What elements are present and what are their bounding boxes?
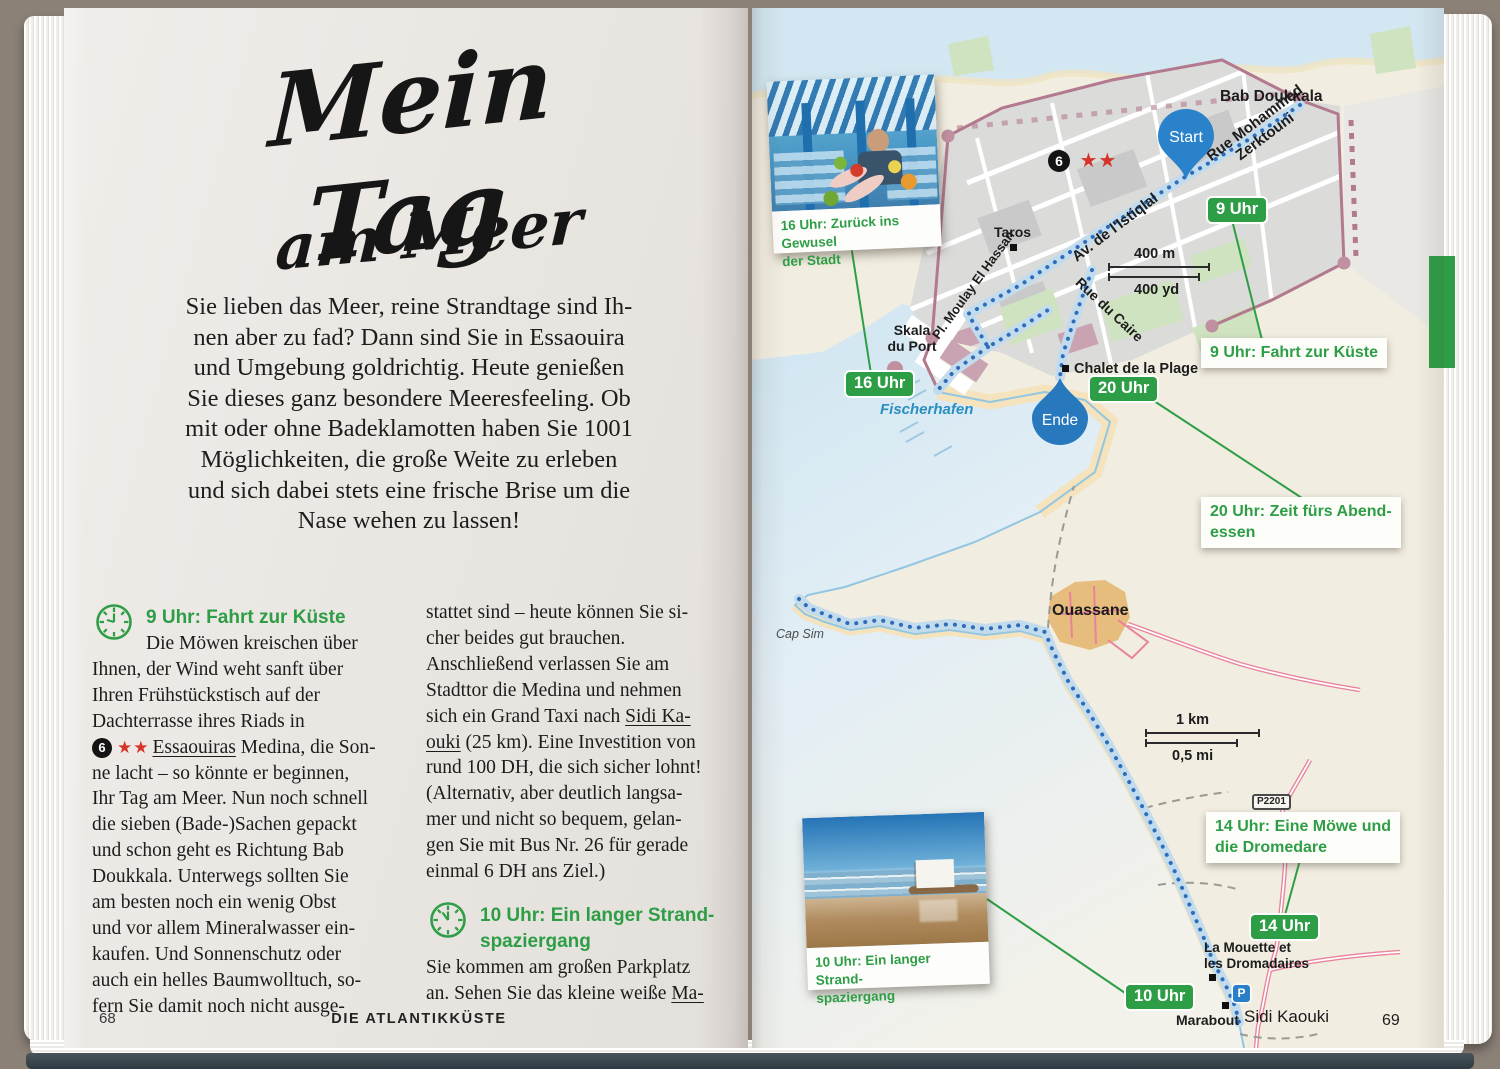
photo-caption-10uhr: 10 Uhr: Ein langer Strand- spaziergang xyxy=(807,942,991,1015)
map-label-chalet: Chalet de la Plage xyxy=(1074,361,1198,377)
scalebar-400m-label: 400 m xyxy=(1134,246,1175,262)
map-label-fischerhafen: Fischerhafen xyxy=(880,401,973,418)
body-line-link: ouki (25 km). Eine Investition von xyxy=(426,730,758,756)
map-label-cap-sim: Cap Sim xyxy=(776,627,824,641)
poi-link-marabout: Ma- xyxy=(671,983,704,1004)
map-label-line: les Dromadaires xyxy=(1204,956,1309,972)
intro-line: Sie dieses ganz besondere Meeresfeeling.… xyxy=(142,384,676,415)
left-page: Mein Tag am Meer Sie lieben das Meer, re… xyxy=(64,8,748,1048)
scalebar-1km-label: 1 km xyxy=(1176,712,1209,728)
body-line: mer und nicht so bequem, gelan- xyxy=(426,807,758,833)
intro-line: und sich dabei stets eine frische Brise … xyxy=(142,476,676,507)
clock-icon xyxy=(428,900,468,940)
clock-icon xyxy=(94,602,134,642)
ende-pin-label: Ende xyxy=(1042,412,1078,429)
start-pin: Start xyxy=(1156,108,1216,182)
body-line: ne lacht – so könnte er beginnen, xyxy=(92,761,424,787)
start-pin-label: Start xyxy=(1169,129,1203,146)
body-line: Anschließend verlassen Sie am xyxy=(426,652,758,678)
time-badge-10uhr: 10 Uhr xyxy=(1126,985,1193,1009)
intro-line: nen aber zu fad? Dann sind Sie in Essaou… xyxy=(142,323,676,354)
photo-market-16uhr: 16 Uhr: Zurück ins Gewusel der Stadt xyxy=(766,74,941,253)
poi-number-badge: 6 xyxy=(1048,150,1070,172)
body-column-1: 9 Uhr: Fahrt zur Küste Die Möwen kreisch… xyxy=(92,600,424,1020)
chapter-thumb-tab xyxy=(1429,256,1455,368)
body-line: Stadttor die Medina und nehmen xyxy=(426,678,758,704)
ende-pin: Ende xyxy=(1030,376,1090,446)
body-line: (Alternativ, aber deutlich langsa- xyxy=(426,781,758,807)
section-heading-10uhr-line2: spaziergang xyxy=(480,929,758,955)
section-10uhr-heading-row: 10 Uhr: Ein langer Strand- spaziergang xyxy=(426,898,758,955)
book-cover-edge xyxy=(26,1053,1474,1069)
body-line: stattet sind – heute können Sie si- xyxy=(426,600,758,626)
caption-line: 10 Uhr: Ein langer Strand- xyxy=(815,948,982,990)
time-badge-20uhr: 20 Uhr xyxy=(1090,377,1157,401)
page-number-left: 68 xyxy=(99,1010,116,1027)
map-label-ouassane: Ouassane xyxy=(1052,602,1128,620)
rating-stars: ★★ xyxy=(117,738,149,757)
section-heading-10uhr-line1: 10 Uhr: Ein langer Strand- xyxy=(480,898,758,929)
body-line: und schon geht es Richtung Bab xyxy=(92,838,424,864)
body-line: die sieben (Bade-)Sachen gepackt xyxy=(92,812,424,838)
time-badge-9uhr: 9 Uhr xyxy=(1208,198,1266,222)
body-line-poi: 6★★Essaouiras Medina, die Son- xyxy=(92,735,424,761)
photo-caption-16uhr: 16 Uhr: Zurück ins Gewusel der Stadt xyxy=(772,204,943,278)
poi-square-chalet xyxy=(1062,365,1069,372)
body-line: Ihnen, der Wind weht sanft über xyxy=(92,657,424,683)
photo-image-beach xyxy=(802,812,988,948)
body-line: rund 100 DH, die sich sicher lohnt! xyxy=(426,755,758,781)
beach-scene xyxy=(802,812,988,948)
right-page-map: Bab Doukkala Rue Mohammed Zerktouni Av. … xyxy=(752,8,1444,1048)
callout-line: essen xyxy=(1210,522,1392,543)
body-text: (25 km). Eine Investition von xyxy=(461,732,696,753)
book-right-page-stack xyxy=(1444,14,1492,1044)
body-line: am besten noch ein wenig Obst xyxy=(92,890,424,916)
poi-square-la-mouette xyxy=(1209,974,1216,981)
map-label-marabout: Marabout xyxy=(1176,1012,1239,1028)
poi-link-essaouira: Essaouiras xyxy=(152,737,235,758)
body-line: kaufen. Und Sonnenschutz oder xyxy=(92,942,424,968)
callout-line: 20 Uhr: Zeit fürs Abend- xyxy=(1210,501,1392,522)
poi-number-badge: 6 xyxy=(92,738,112,758)
scalebar-400yd-label: 400 yd xyxy=(1134,282,1179,298)
body-line: Doukkala. Unterwegs sollten Sie xyxy=(92,864,424,890)
body-line: Dachterrasse ihres Riads in xyxy=(92,709,424,735)
body-line: und vor allem Mineralwasser ein- xyxy=(92,916,424,942)
body-line-link: an. Sehen Sie das kleine weiße Ma- xyxy=(426,981,758,1007)
time-badge-16uhr: 16 Uhr xyxy=(846,372,913,396)
market-scene xyxy=(766,74,940,211)
body-text: sich ein Grand Taxi nach xyxy=(426,706,625,727)
callout-20uhr: 20 Uhr: Zeit fürs Abend- essen xyxy=(1201,497,1401,548)
body-line: Ihr Tag am Meer. Nun noch schnell xyxy=(92,786,424,812)
photo-image-market xyxy=(766,74,940,211)
body-text: an. Sehen Sie das kleine weiße xyxy=(426,983,671,1004)
map-label-la-mouette: La Mouette et les Dromadaires xyxy=(1204,940,1309,972)
poi-square-marabout xyxy=(1222,1002,1229,1009)
intro-line: Sie lieben das Meer, reine Strandtage si… xyxy=(142,292,676,323)
section-heading-9uhr: 9 Uhr: Fahrt zur Küste xyxy=(146,600,424,631)
page-number-right: 69 xyxy=(1382,1012,1400,1030)
intro-line: Möglichkeiten, die große Weite zu erlebe… xyxy=(142,445,676,476)
map-label-line: du Port xyxy=(884,338,940,354)
map-label-sidi-kaouki: Sidi Kaouki xyxy=(1244,1007,1329,1027)
section-9uhr-heading-row: 9 Uhr: Fahrt zur Küste Die Möwen kreisch… xyxy=(92,600,424,657)
callout-line: die Dromedare xyxy=(1215,837,1391,858)
callout-14uhr: 14 Uhr: Eine Möwe und die Dromedare xyxy=(1206,812,1400,863)
scalebar-1km xyxy=(1145,732,1260,734)
intro-line: Nase wehen zu lassen! xyxy=(142,506,676,537)
body-line-link: sich ein Grand Taxi nach Sidi Ka- xyxy=(426,704,758,730)
body-line: gen Sie mit Bus Nr. 26 für gerade xyxy=(426,833,758,859)
map-label-skala-du-port: Skala du Port xyxy=(884,322,940,354)
road-shield-p2201: P2201 xyxy=(1252,794,1291,810)
time-badge-14uhr: 14 Uhr xyxy=(1251,915,1318,939)
body-line: cher beides gut brauchen. xyxy=(426,626,758,652)
map-poi-6: 6 ★★ xyxy=(1048,148,1120,173)
map-label-line: Skala xyxy=(884,322,940,338)
poi-link-sidi-kaouki: ouki xyxy=(426,732,461,753)
body-line: auch ein helles Baumwolltuch, so- xyxy=(92,968,424,994)
photo-beach-10uhr: 10 Uhr: Ein langer Strand- spaziergang xyxy=(802,812,990,990)
callout-line: 14 Uhr: Eine Möwe und xyxy=(1215,816,1391,837)
scalebar-05mi xyxy=(1145,742,1238,744)
body-line: Ihren Frühstückstisch auf der xyxy=(92,683,424,709)
body-line: Sie kommen am großen Parkplatz xyxy=(426,955,758,981)
body-column-2: stattet sind – heute können Sie si- cher… xyxy=(426,600,758,1007)
scalebar-400m xyxy=(1108,266,1210,268)
callout-9uhr: 9 Uhr: Fahrt zur Küste xyxy=(1201,338,1387,368)
body-text: Medina, die Son- xyxy=(236,737,376,758)
intro-paragraph: Sie lieben das Meer, reine Strandtage si… xyxy=(142,292,676,537)
map-label-line: La Mouette et xyxy=(1204,940,1309,956)
rating-stars: ★★ xyxy=(1079,150,1117,172)
body-line: einmal 6 DH ans Ziel.) xyxy=(426,859,758,885)
parking-icon: P xyxy=(1233,985,1250,1002)
intro-line: und Umgebung goldrichtig. Heute genießen xyxy=(142,353,676,384)
intro-line: mit oder ohne Badeklamotten haben Sie 10… xyxy=(142,414,676,445)
scalebar-05mi-label: 0,5 mi xyxy=(1172,748,1213,764)
body-line: Die Möwen kreischen über xyxy=(146,631,424,657)
chapter-footer: DIE ATLANTIKKÜSTE xyxy=(214,1011,624,1027)
poi-link-sidi-kaouki: Sidi Ka- xyxy=(625,706,691,727)
scalebar-400yd xyxy=(1108,276,1200,278)
